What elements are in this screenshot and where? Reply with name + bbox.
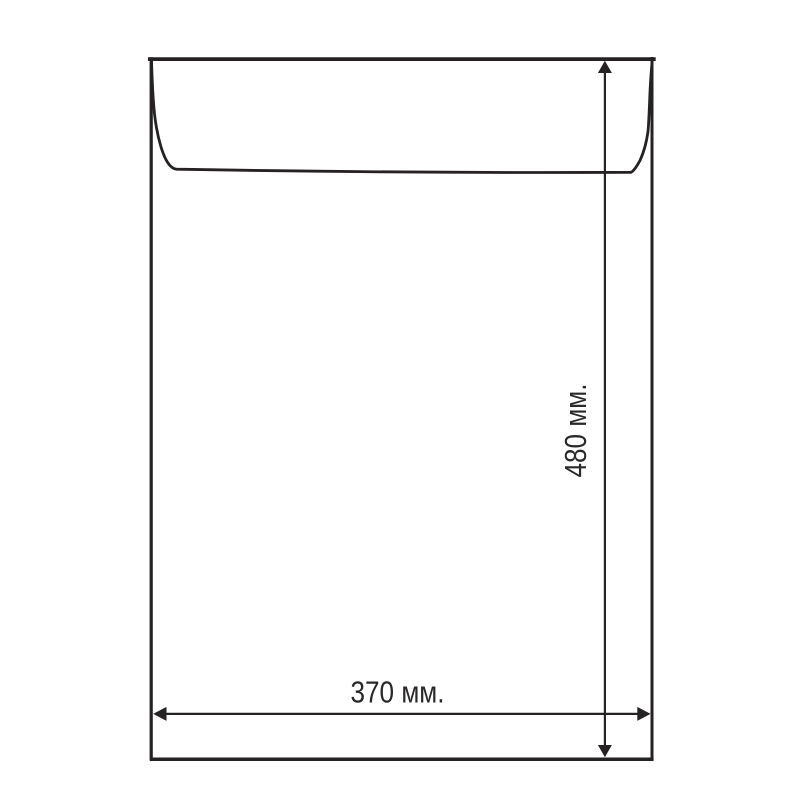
svg-text:480 мм.: 480 мм.: [558, 384, 593, 478]
svg-text:370 мм.: 370 мм.: [351, 675, 445, 710]
